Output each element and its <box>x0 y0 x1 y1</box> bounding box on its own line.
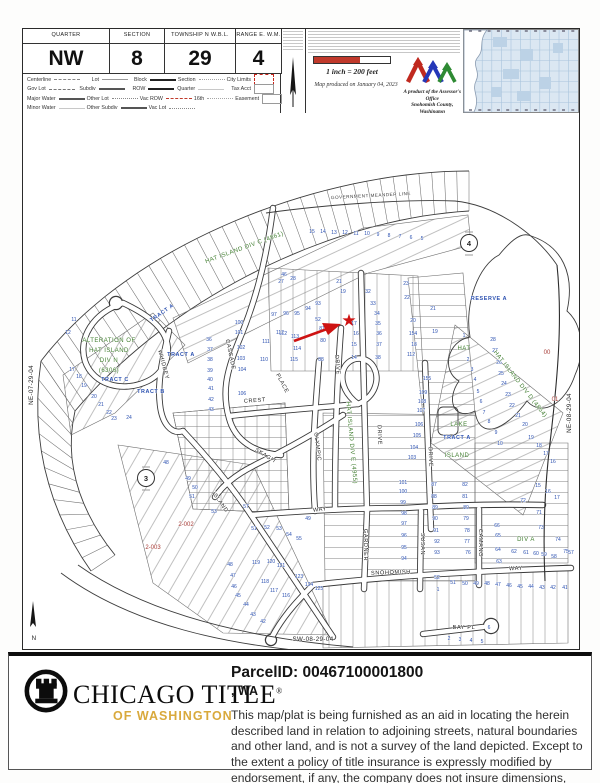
lot-number: 90 <box>432 516 438 522</box>
lot-number: 33 <box>370 301 376 307</box>
legend-swatch-solid-med <box>99 88 125 90</box>
legend-item: Vac ROW <box>140 96 194 102</box>
lot-number: 99 <box>400 500 406 506</box>
lot-number: 80 <box>320 338 326 344</box>
section-value: 8 <box>110 44 164 73</box>
legend-item: Gov Lot <box>27 86 77 92</box>
map-label: DRIVE <box>333 355 341 376</box>
lot-number: 77 <box>464 539 470 545</box>
legend-swatch-thin-light <box>198 89 224 90</box>
legend-item-label: Subdiv <box>79 86 95 92</box>
legend-swatch-dash-gray <box>49 89 75 90</box>
lot-number: 43 <box>208 407 214 413</box>
lot-number: 42 <box>550 585 556 591</box>
lot-number: 38 <box>375 355 381 361</box>
legend-swatch-dashdot-light <box>199 79 225 80</box>
scale-bar <box>313 56 391 64</box>
map-label: HAT ISLAND <box>89 348 129 354</box>
lot-number: 39 <box>207 368 213 374</box>
lot-number: 64 <box>495 547 501 553</box>
lot-number: 76 <box>465 550 471 556</box>
lot-number: 154 <box>409 331 418 337</box>
lot-number: 4 <box>474 377 477 383</box>
lot-number: 4 <box>470 638 473 644</box>
map-label: ISLAND <box>445 453 470 459</box>
lot-number: 24 <box>126 415 132 421</box>
legend-item-label: Vac ROW <box>140 96 163 102</box>
section-marker-number: 3 <box>144 474 148 483</box>
lot-number: 14 <box>320 229 326 235</box>
lot-number: 112 <box>407 352 415 358</box>
lot-number: 44 <box>528 584 534 590</box>
lot-number: 104 <box>410 445 419 451</box>
lot-number: 74 <box>555 537 561 543</box>
lot-number: 15 <box>351 342 357 348</box>
legend-item-label: ROW <box>132 86 145 92</box>
lot-number: 87 <box>431 482 437 488</box>
lot-number: 117 <box>270 588 278 594</box>
lot-number: 42 <box>260 619 266 625</box>
lot-number: 49 <box>473 581 479 587</box>
lot-number: 49 <box>185 476 191 482</box>
lot-number: 2 <box>467 357 470 363</box>
lot-number: 25 <box>498 371 504 377</box>
lot-number: 24 <box>501 381 507 387</box>
map-label: ALTERATION OF <box>82 338 135 344</box>
legend-swatch-solid-med <box>121 107 147 109</box>
lot-number: 93 <box>434 550 440 556</box>
legend-item-label: Major Water <box>27 96 56 102</box>
lot-number: 5 <box>421 236 424 242</box>
map-label: CAMANO <box>477 529 483 557</box>
range-cell: RANGE E. W.M. 4 <box>236 29 281 73</box>
lot-number: 108 <box>418 399 427 405</box>
legend-item: ROW <box>127 86 177 92</box>
lot-number: 81 <box>462 494 468 500</box>
parcel-state: , WA <box>231 684 587 698</box>
lot-number: 41 <box>208 386 214 392</box>
legend: CenterlineLotBlockSectionCity LimitsGov … <box>23 73 281 113</box>
legend-item: Lot <box>82 77 130 83</box>
lot-number: 78 <box>464 528 470 534</box>
lot-number: 8 <box>388 233 391 239</box>
legend-item: Major Water <box>27 96 87 102</box>
lot-number: 46 <box>506 583 512 589</box>
legend-swatch-solid-thick <box>150 79 176 81</box>
footer: CHICAGO TITLE® OF WASHINGTON ParcelID: 0… <box>8 652 592 770</box>
lot-number: 52 <box>434 575 440 581</box>
lot-number: 14 <box>351 355 357 361</box>
lot-number: 93 <box>315 301 321 307</box>
lot-number: 37 <box>376 342 382 348</box>
legend-item: Easement <box>235 94 284 104</box>
map-label: NE-07-29-04 <box>28 365 35 405</box>
legend-item-label: Minor Water <box>27 105 56 111</box>
map-label: CREST <box>244 397 266 405</box>
fine-print-block <box>283 31 303 51</box>
lot-number: 116 <box>282 593 290 599</box>
lot-number: 9 <box>377 232 380 238</box>
legend-item-label: Section <box>178 77 196 83</box>
assessor-logo-icon <box>404 56 460 84</box>
lot-number: 155 <box>423 376 432 382</box>
legend-item-label: Centerline <box>27 77 51 83</box>
section-label: SECTION <box>110 29 164 44</box>
lot-number: 45 <box>517 584 523 590</box>
map-label: N <box>32 635 37 642</box>
legend-swatch-box-outline <box>254 84 274 94</box>
brand-subtitle: OF WASHINGTON <box>113 709 233 723</box>
legend-item-label: Other Lot <box>87 96 109 102</box>
lot-number: 59 <box>541 552 547 558</box>
lot-number: 8 <box>488 419 491 425</box>
map-label: DRIVE <box>376 425 383 445</box>
lot-number: 41 <box>562 585 568 591</box>
lot-number: 61 <box>523 550 529 556</box>
lot-number: 123 <box>295 574 304 580</box>
parcel-id: ParcelID: 00467100001800 <box>231 664 587 682</box>
lot-number: 105 <box>413 433 422 439</box>
lot-number: 23 <box>505 392 511 398</box>
map-label: WAY <box>509 566 523 572</box>
map-produced-date: Map produced on January 04, 2023 <box>313 82 399 88</box>
fine-print-column <box>281 29 306 113</box>
plat-document: QUARTER NW SECTION 8 TOWNSHIP N W.B.L. 2… <box>22 28 580 650</box>
legend-item: 16th <box>194 96 235 102</box>
legend-item: Tax Acct <box>226 84 276 94</box>
lot-number: 57 <box>568 550 574 556</box>
lot-number: 94 <box>401 556 407 562</box>
lot-number: 28 <box>290 276 296 282</box>
lot-number: 102 <box>237 345 246 351</box>
lot-number: 11 <box>71 317 76 323</box>
lot-number: 97 <box>401 521 407 527</box>
legend-item: Subdiv <box>77 86 127 92</box>
map-label: HAT ISLAND DIV C (4861) <box>205 231 285 265</box>
lot-number: 94 <box>305 306 311 312</box>
chicago-title-logo-icon <box>23 668 69 714</box>
map-header-strip: QUARTER NW SECTION 8 TOWNSHIP N W.B.L. 2… <box>23 29 579 114</box>
township-label: TOWNSHIP N W.B.L. <box>165 29 235 44</box>
section-table: QUARTER NW SECTION 8 TOWNSHIP N W.B.L. 2… <box>23 29 282 74</box>
lot-number: 48 <box>227 562 233 568</box>
lot-number: 3 <box>471 367 474 373</box>
lot-number: 53 <box>276 526 282 532</box>
map-label: 00 <box>544 350 551 356</box>
lot-number: 38 <box>207 357 213 363</box>
lot-number: 3 <box>459 637 462 643</box>
lot-number: 95 <box>294 311 300 317</box>
lot-number: 89 <box>432 505 438 511</box>
lot-number: 100 <box>399 489 408 495</box>
map-label: BAY PL <box>453 625 476 631</box>
map-label: NE-08-29-04 <box>566 393 573 433</box>
lot-number: 43 <box>250 612 256 618</box>
lot-number: 28 <box>490 337 496 343</box>
lot-number: 21 <box>336 279 342 285</box>
lot-number: 10 <box>364 231 370 237</box>
lot-number: 66 <box>494 523 500 529</box>
lot-number: 125 <box>315 586 324 592</box>
lot-number: 80 <box>463 505 469 511</box>
page: QUARTER NW SECTION 8 TOWNSHIP N W.B.L. 2… <box>0 0 600 783</box>
map-label: LAKE <box>450 422 467 428</box>
township-cell: TOWNSHIP N W.B.L. 29 <box>165 29 236 73</box>
legend-swatch-dotted-gray <box>169 108 195 109</box>
lot-number: 55 <box>296 536 302 542</box>
map-label: 2-003 <box>145 545 161 551</box>
lot-number: 73 <box>538 525 544 531</box>
legend-swatch-red-dash <box>166 98 192 99</box>
lot-number: 57 <box>243 504 249 510</box>
lot-number: 51 <box>450 580 456 586</box>
map-label: 2-002 <box>178 522 194 528</box>
lot-number: 23 <box>403 281 409 287</box>
lot-number: 6 <box>488 625 491 631</box>
lot-number: 48 <box>484 581 490 587</box>
lot-number: 92 <box>434 539 440 545</box>
quarter-cell: QUARTER NW <box>23 29 110 73</box>
lot-number: 58 <box>551 554 557 560</box>
lot-number: 22 <box>509 403 515 409</box>
lot-number: 118 <box>261 579 269 585</box>
lot-number: 15 <box>535 483 541 489</box>
lot-number: 60 <box>533 551 539 557</box>
map-label: SW-08-29-04 <box>292 636 333 643</box>
lot-number: 101 <box>399 480 408 486</box>
lot-number: 112 <box>276 330 284 336</box>
lot-number: 101 <box>235 330 244 336</box>
lot-number: 6 <box>480 399 483 405</box>
lot-number: 5 <box>481 639 484 645</box>
lot-number: 79 <box>463 516 469 522</box>
scale-bar-fill <box>314 57 360 63</box>
lot-number: 34 <box>374 311 380 317</box>
legend-item: Centerline <box>27 77 82 83</box>
lot-number: 111 <box>262 339 270 345</box>
lot-number: 62 <box>511 549 517 555</box>
lot-number: 20 <box>91 394 97 400</box>
lot-number: 47 <box>230 573 236 579</box>
lot-number: 97 <box>271 312 277 318</box>
quarter-value: NW <box>23 44 109 73</box>
lot-number: 48 <box>163 460 169 466</box>
lot-number: 21 <box>98 402 104 408</box>
lot-number: 72 <box>520 498 526 504</box>
map-label: SUSAN <box>419 533 425 555</box>
scale-text: 1 inch = 200 feet <box>313 67 391 76</box>
lot-number: 121 <box>277 563 286 569</box>
lot-number: 82 <box>462 482 468 488</box>
lot-number: 52 <box>264 525 270 531</box>
lot-number: 16 <box>550 459 556 465</box>
lot-number: 71 <box>536 510 542 516</box>
lot-number: 18 <box>76 374 82 380</box>
map-label: TRACT A <box>443 435 471 441</box>
lot-number: 1 <box>463 333 466 339</box>
lot-number: 36 <box>376 331 382 337</box>
plat-map: 1514131211109876546272821231932223334949… <box>23 113 579 649</box>
lot-number: 42 <box>208 397 214 403</box>
lot-number: 54 <box>286 532 292 538</box>
legend-swatch-solid-med <box>59 98 85 100</box>
lot-number: 7 <box>483 410 486 416</box>
lot-number: 110 <box>260 357 268 363</box>
lot-number: 96 <box>283 311 289 317</box>
lot-number: 18 <box>411 342 417 348</box>
legend-swatch-thin-light <box>59 108 85 109</box>
section-cell: SECTION 8 <box>110 29 165 73</box>
lot-number: 19 <box>528 435 534 441</box>
lot-number: 51 <box>251 526 257 532</box>
lot-number: 16 <box>353 331 359 337</box>
lot-number: 19 <box>81 383 87 389</box>
lot-number: 47 <box>495 582 501 588</box>
lot-number: 106 <box>238 391 247 397</box>
parcel-block: ParcelID: 00467100001800 , WA This map/p… <box>231 664 587 783</box>
lot-number: 12 <box>65 330 71 336</box>
legend-item-label: Quarter <box>177 86 195 92</box>
map-north-arrow-icon <box>30 601 36 627</box>
map-label: TRACT C <box>101 377 129 383</box>
lot-number: 91 <box>433 528 439 534</box>
lot-number: 107 <box>417 408 426 414</box>
lot-number: 15 <box>309 229 315 235</box>
legend-item-label: Easement <box>235 96 259 102</box>
lot-number: 44 <box>243 602 249 608</box>
lot-number: 120 <box>267 559 276 565</box>
disclaimer-text: This map/plat is being furnished as an a… <box>231 708 587 783</box>
lot-number: 9 <box>495 430 498 436</box>
lot-number: 65 <box>495 533 501 539</box>
map-label: HAT <box>457 346 470 352</box>
map-label: RESERVE A <box>471 296 507 302</box>
lot-number: 19 <box>340 289 346 295</box>
lot-number: 63 <box>496 559 502 565</box>
lot-number: 96 <box>401 533 407 539</box>
lot-number: 16 <box>545 489 551 495</box>
lot-number: 36 <box>206 337 212 343</box>
lot-number: 88 <box>318 357 324 363</box>
lot-number: 23 <box>111 416 117 422</box>
legend-item-label: Other Subdiv <box>87 105 118 111</box>
range-value: 4 <box>236 44 281 73</box>
lot-number: 40 <box>207 377 213 383</box>
quarter-label: QUARTER <box>23 29 109 44</box>
lot-number: 11 <box>353 231 358 237</box>
legend-item-label: Gov Lot <box>27 86 46 92</box>
map-label: (6306) <box>99 368 119 374</box>
legend-item: Other Lot <box>87 96 140 102</box>
legend-swatch-dashdot-gray <box>54 79 80 80</box>
legend-item: Minor Water <box>27 105 87 111</box>
legend-item: Block <box>130 77 178 83</box>
disclaimer-smallprint <box>308 31 460 53</box>
lot-number: 98 <box>401 511 407 517</box>
legend-item-label: Tax Acct <box>231 86 251 92</box>
map-label: DIV N <box>100 358 119 364</box>
township-value: 29 <box>165 44 235 73</box>
assessor-credit-line1: A product of the Assessor's Office <box>401 89 463 102</box>
lot-number: 103 <box>237 356 246 362</box>
legend-item: Quarter <box>176 86 226 92</box>
legend-item-label: Block <box>134 77 147 83</box>
lot-number: 37 <box>207 347 213 353</box>
map-label: 01 <box>552 397 559 403</box>
county-inset-map <box>463 29 579 113</box>
scale-box: 1 inch = 200 feet Map produced on Januar… <box>305 29 464 113</box>
lot-number: 52 <box>315 317 321 323</box>
lot-number: 50 <box>462 581 468 587</box>
map-label: GOVERNMENT MEANDER LINE <box>331 191 411 200</box>
lot-number: 46 <box>281 272 287 278</box>
lot-number: 88 <box>431 494 437 500</box>
legend-swatch-solid-thick <box>148 88 174 90</box>
legend-item: Section <box>178 77 227 83</box>
map-label: GARDNER <box>362 529 368 561</box>
lot-number: 20 <box>522 422 528 428</box>
lot-number: 17 <box>543 451 549 457</box>
lot-number: 32 <box>365 289 371 295</box>
legend-item: Other Subdiv <box>87 105 149 111</box>
lot-number: 109 <box>419 390 428 396</box>
north-arrow-icon <box>285 55 301 109</box>
lot-number: 106 <box>415 422 424 428</box>
lot-number: 50 <box>192 485 198 491</box>
lot-number: 19 <box>432 329 438 335</box>
lot-number: 20 <box>410 318 416 324</box>
lot-number: 119 <box>252 560 260 566</box>
lot-number: 53 <box>211 509 217 515</box>
legend-swatch-dashdot-light <box>207 98 233 99</box>
lot-number: 2 <box>448 636 451 642</box>
lot-number: 95 <box>401 545 407 551</box>
lot-number: 22 <box>404 295 410 301</box>
lot-number: 104 <box>238 367 247 373</box>
legend-swatch-box-outline <box>262 94 282 104</box>
legend-swatch-dotted-gray <box>112 98 138 99</box>
legend-item: Vac Lot <box>149 105 198 111</box>
map-label: PLACE <box>274 373 289 395</box>
map-label: TRACT A <box>167 352 195 358</box>
map-label: DIV A <box>517 537 535 543</box>
lot-number: 114 <box>293 346 301 352</box>
lot-number: 21 <box>430 306 436 312</box>
lot-number: 6 <box>410 235 413 241</box>
lot-number: 49 <box>305 516 311 522</box>
lot-number: 124 <box>305 582 314 588</box>
legend-item-label: 16th <box>194 96 204 102</box>
lot-number: 46 <box>231 584 237 590</box>
lot-number: 1 <box>437 587 440 593</box>
subject-parcel-star: ★ <box>341 311 356 330</box>
lot-number: 115 <box>290 357 298 363</box>
lot-number: 18 <box>536 443 542 449</box>
lot-number: 13 <box>331 230 337 236</box>
lot-number: 103 <box>408 455 417 461</box>
lot-number: 12 <box>342 230 348 236</box>
lot-number: 27 <box>278 279 284 285</box>
range-label: RANGE E. W.M. <box>236 29 281 44</box>
map-label: DRIVE <box>427 447 434 467</box>
map-label: TRACT B <box>137 389 165 395</box>
lot-number: 5 <box>477 389 480 395</box>
lot-number: 51 <box>189 494 195 500</box>
legend-item-label: Lot <box>92 77 99 83</box>
lot-number: 17 <box>69 367 75 373</box>
legend-item-label: Vac Lot <box>149 105 167 111</box>
lot-number: 43 <box>539 585 545 591</box>
